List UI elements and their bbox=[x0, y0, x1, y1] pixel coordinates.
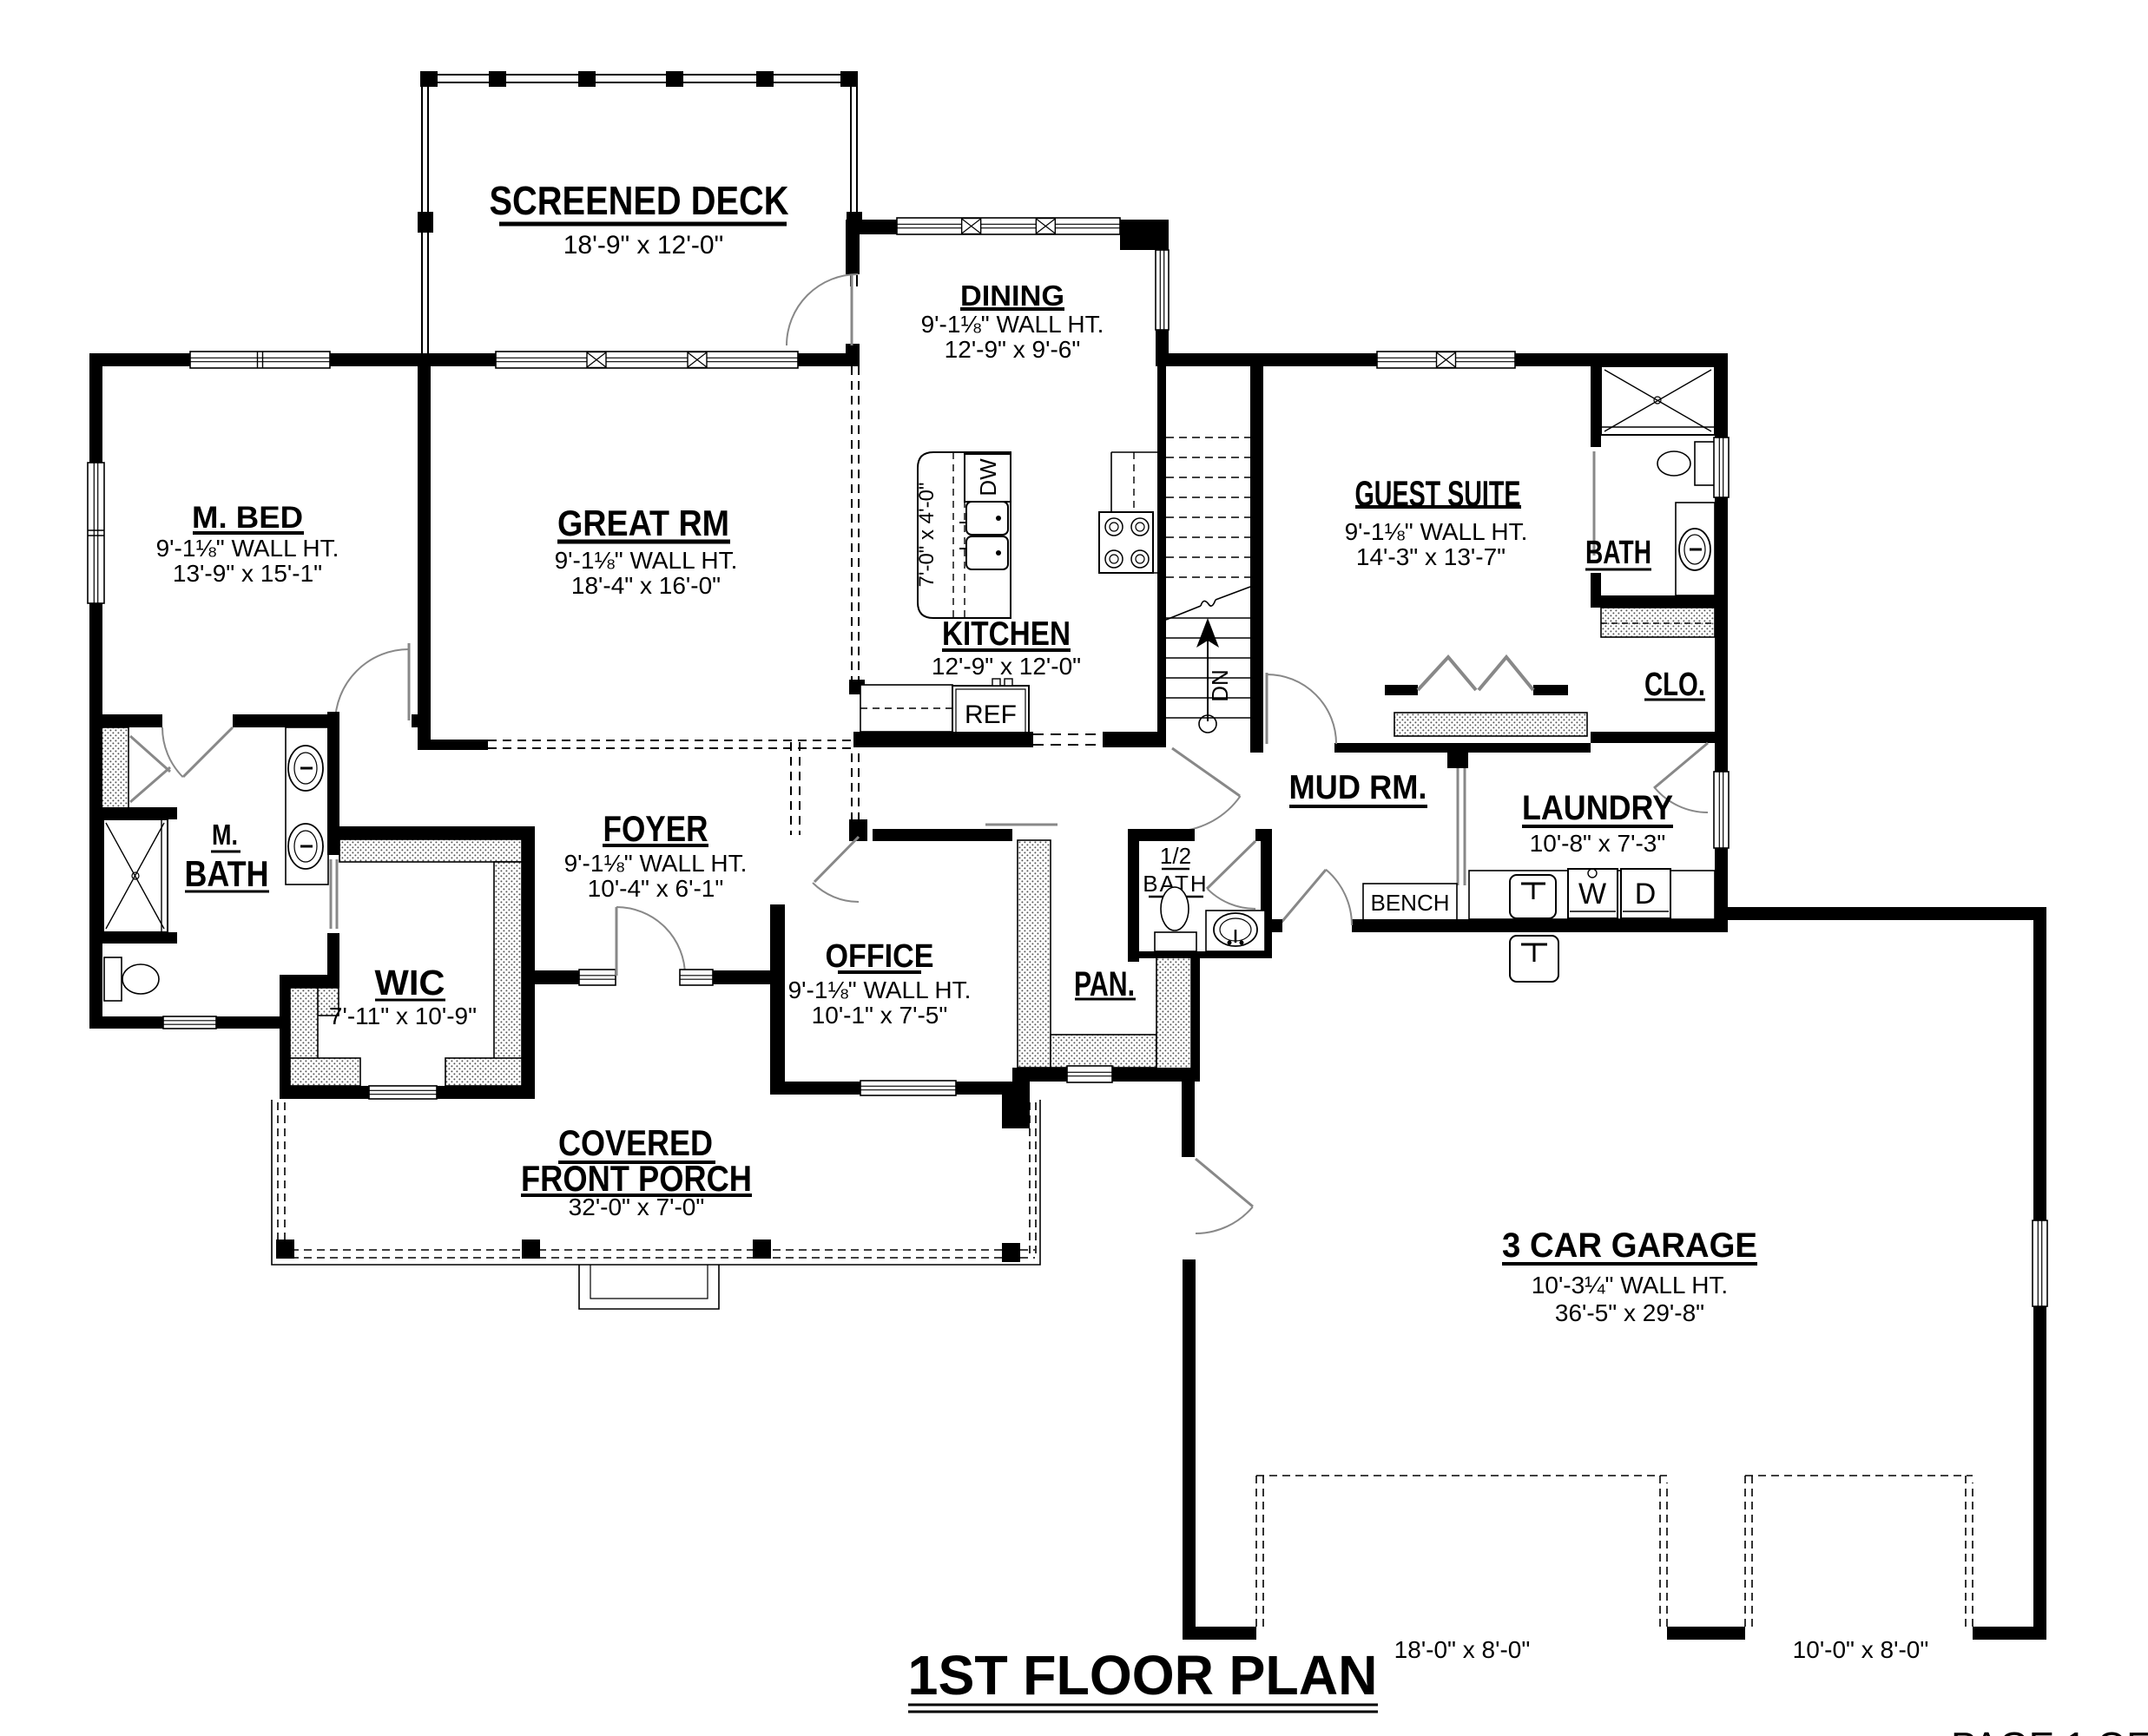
svg-text:13'-9" x 15'-1": 13'-9" x 15'-1" bbox=[173, 560, 322, 587]
svg-text:D: D bbox=[1635, 878, 1657, 911]
svg-text:18'-9" x 12'-0": 18'-9" x 12'-0" bbox=[563, 231, 724, 260]
svg-text:DINING: DINING bbox=[960, 279, 1064, 312]
svg-text:DN: DN bbox=[1207, 669, 1233, 702]
svg-text:BENCH: BENCH bbox=[1370, 890, 1449, 916]
svg-text:10'-4" x 6'-1": 10'-4" x 6'-1" bbox=[588, 875, 724, 902]
svg-text:WIC: WIC bbox=[375, 963, 445, 1003]
svg-text:MUD RM.: MUD RM. bbox=[1289, 769, 1427, 806]
svg-text:7'-11" x 10'-9": 7'-11" x 10'-9" bbox=[329, 1003, 477, 1029]
svg-text:7'-0" x 4'-0": 7'-0" x 4'-0" bbox=[915, 483, 939, 588]
svg-text:18'-0" x 8'-0": 18'-0" x 8'-0" bbox=[1394, 1636, 1531, 1663]
svg-text:BATH: BATH bbox=[1585, 535, 1651, 571]
svg-text:1/2: 1/2 bbox=[1160, 843, 1191, 869]
svg-text:9'-1⅛" WALL HT.: 9'-1⅛" WALL HT. bbox=[156, 535, 339, 562]
svg-text:OFFICE: OFFICE bbox=[826, 938, 934, 975]
svg-text:BATH: BATH bbox=[185, 853, 269, 894]
svg-text:9'-1⅛" WALL HT.: 9'-1⅛" WALL HT. bbox=[1345, 518, 1528, 545]
svg-text:LAUNDRY: LAUNDRY bbox=[1522, 789, 1673, 827]
svg-text:12'-9" x 9'-6": 12'-9" x 9'-6" bbox=[945, 336, 1081, 363]
svg-text:10'-1" x 7'-5": 10'-1" x 7'-5" bbox=[812, 1002, 948, 1029]
svg-text:FRONT PORCH: FRONT PORCH bbox=[521, 1158, 752, 1199]
svg-text:REF: REF bbox=[965, 700, 1017, 729]
svg-text:9'-1⅛" WALL HT.: 9'-1⅛" WALL HT. bbox=[921, 311, 1104, 338]
svg-text:12'-9" x 12'-0": 12'-9" x 12'-0" bbox=[932, 653, 1081, 680]
svg-text:PAGE 1 OF 2: PAGE 1 OF 2 bbox=[1951, 1725, 2148, 1736]
svg-text:KITCHEN: KITCHEN bbox=[942, 615, 1071, 653]
svg-text:COVERED: COVERED bbox=[558, 1122, 713, 1163]
svg-text:9'-1⅛" WALL HT.: 9'-1⅛" WALL HT. bbox=[788, 976, 972, 1003]
svg-text:SCREENED DECK: SCREENED DECK bbox=[490, 178, 789, 223]
svg-text:M.: M. bbox=[212, 819, 238, 851]
svg-text:32'-0" x 7'-0": 32'-0" x 7'-0" bbox=[569, 1193, 705, 1220]
svg-text:M. BED: M. BED bbox=[192, 501, 303, 535]
svg-text:3 CAR GARAGE: 3 CAR GARAGE bbox=[1502, 1226, 1757, 1265]
svg-text:14'-3" x 13'-7": 14'-3" x 13'-7" bbox=[1356, 543, 1506, 570]
svg-text:36'-5" x 29'-8": 36'-5" x 29'-8" bbox=[1555, 1299, 1704, 1326]
svg-text:9'-1⅛" WALL HT.: 9'-1⅛" WALL HT. bbox=[555, 547, 738, 574]
svg-text:DW: DW bbox=[975, 458, 1001, 496]
svg-text:10'-0" x 8'-0": 10'-0" x 8'-0" bbox=[1793, 1636, 1929, 1663]
svg-text:9'-1⅛" WALL HT.: 9'-1⅛" WALL HT. bbox=[564, 850, 748, 877]
svg-text:CLO.: CLO. bbox=[1644, 667, 1705, 703]
svg-text:10'-3¼" WALL HT.: 10'-3¼" WALL HT. bbox=[1532, 1272, 1728, 1299]
svg-text:W: W bbox=[1578, 878, 1606, 911]
svg-text:1ST FLOOR PLAN: 1ST FLOOR PLAN bbox=[908, 1644, 1378, 1706]
svg-text:18'-4" x 16'-0": 18'-4" x 16'-0" bbox=[571, 572, 721, 599]
svg-text:10'-8" x 7'-3": 10'-8" x 7'-3" bbox=[1530, 830, 1666, 857]
svg-text:GREAT RM: GREAT RM bbox=[557, 503, 729, 543]
svg-text:FOYER: FOYER bbox=[603, 808, 708, 849]
svg-text:PAN.: PAN. bbox=[1074, 965, 1135, 1003]
